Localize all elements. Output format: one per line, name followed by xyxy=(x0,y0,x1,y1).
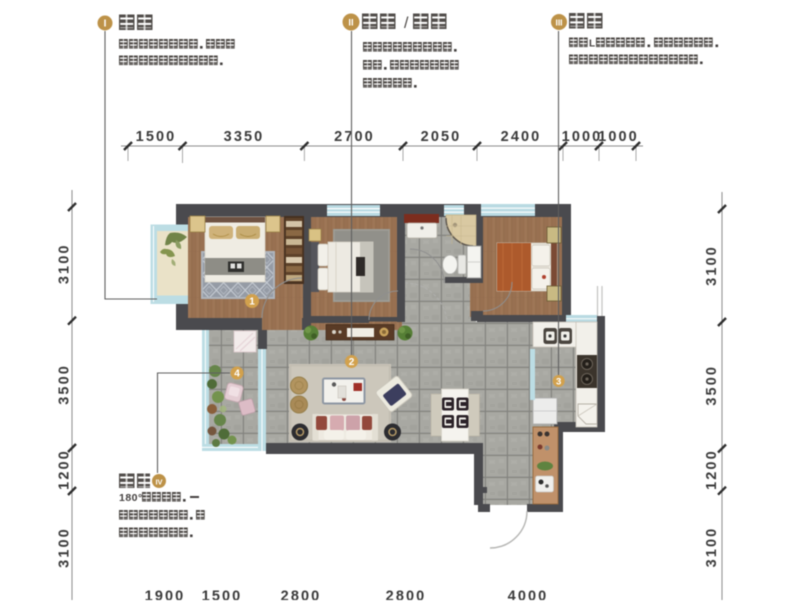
svg-text:180°: 180° xyxy=(119,492,143,504)
svg-text:3100: 3100 xyxy=(704,245,720,286)
svg-text:2800: 2800 xyxy=(386,589,427,601)
svg-text:1500: 1500 xyxy=(136,129,177,145)
svg-text:2050: 2050 xyxy=(421,129,462,145)
svg-text:3100: 3100 xyxy=(57,527,73,568)
svg-text:1900: 1900 xyxy=(145,589,186,601)
svg-text:1000: 1000 xyxy=(562,129,603,145)
svg-text:/: / xyxy=(404,15,409,32)
svg-text:3500: 3500 xyxy=(57,364,73,405)
svg-text:1500: 1500 xyxy=(202,589,243,601)
svg-text:1000: 1000 xyxy=(598,129,639,145)
svg-text:3500: 3500 xyxy=(704,365,720,406)
svg-text:1: 1 xyxy=(249,297,255,308)
svg-text:2800: 2800 xyxy=(281,589,322,601)
svg-text:3: 3 xyxy=(556,377,561,388)
svg-text:IV: IV xyxy=(155,477,162,486)
svg-text:L: L xyxy=(589,39,595,50)
svg-text:2: 2 xyxy=(349,357,355,368)
svg-text:3100: 3100 xyxy=(57,243,73,284)
svg-text:I: I xyxy=(104,19,107,30)
svg-text:II: II xyxy=(348,18,353,29)
svg-text:1200: 1200 xyxy=(57,449,73,490)
svg-text:3350: 3350 xyxy=(224,129,265,145)
svg-text:4: 4 xyxy=(234,369,240,380)
svg-text:1200: 1200 xyxy=(704,449,720,490)
svg-text:3100: 3100 xyxy=(704,527,720,568)
svg-text:2400: 2400 xyxy=(501,129,542,145)
svg-text:III: III xyxy=(555,17,562,27)
svg-text:2700: 2700 xyxy=(334,129,375,145)
svg-text:4000: 4000 xyxy=(508,589,549,601)
